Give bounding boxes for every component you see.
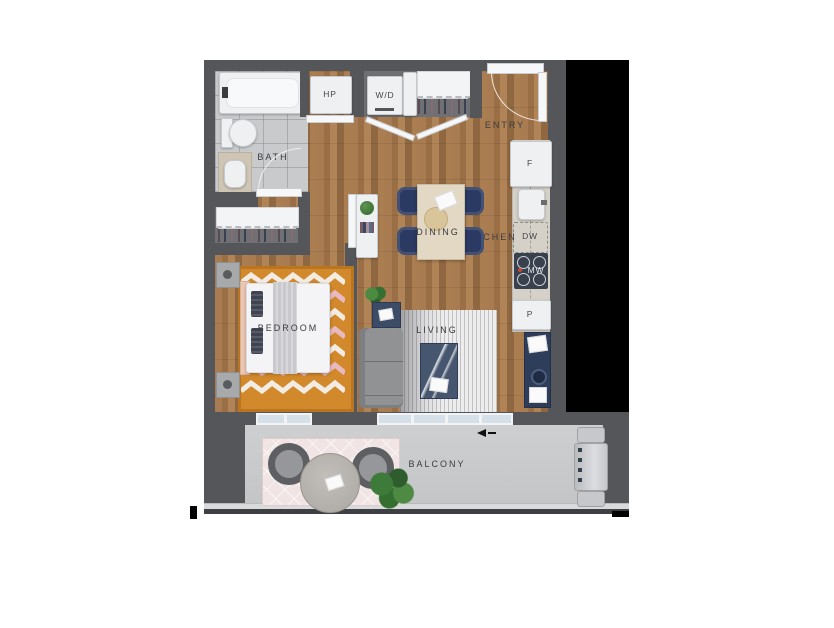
bath-door	[256, 188, 302, 197]
toilet-bowl	[229, 119, 257, 147]
hp-label: HP	[323, 89, 336, 99]
coffee-table-paper	[429, 377, 449, 393]
window-mullion	[445, 415, 448, 423]
coat-closet-shelf	[417, 71, 471, 98]
bathtub-basin	[226, 78, 299, 108]
bath-wall	[204, 192, 258, 207]
bbq-shelf-top	[577, 427, 605, 443]
mw-label: MW	[528, 265, 545, 275]
vanity-sink	[224, 160, 246, 188]
sofa-side-table	[372, 302, 401, 328]
hall-wall-left	[300, 60, 309, 117]
coat-closet-cabinet	[403, 72, 417, 116]
bedroom-top-wall	[204, 243, 300, 255]
console-paper	[527, 335, 548, 353]
balcony-table-card	[324, 474, 344, 492]
dw-label: DW	[522, 231, 538, 241]
bbq-grill	[574, 427, 606, 507]
railing-end-mark-right	[612, 511, 629, 517]
console-box	[529, 387, 547, 403]
window-mullion	[479, 415, 482, 423]
coat-closet-clothes	[418, 98, 468, 114]
lamp-icon	[223, 270, 232, 279]
balcony-wall-left	[204, 412, 245, 505]
console-shelf	[356, 194, 378, 258]
sink-faucet-icon	[541, 200, 547, 205]
pizza-box	[434, 190, 458, 211]
side-table-book	[378, 308, 394, 321]
balcony-plant	[366, 464, 418, 514]
lamp-icon	[223, 380, 232, 389]
washer-vent	[375, 108, 394, 111]
coffee-table	[420, 343, 458, 399]
room-label-entry: ENTRY	[485, 120, 525, 130]
cooktop-indicator	[518, 268, 522, 272]
bedroom-window	[256, 413, 312, 425]
sofa	[359, 328, 403, 408]
balcony-table	[300, 453, 360, 513]
room-label-bedroom: BEDROOM	[258, 323, 319, 333]
slider-direction-arrow	[477, 424, 496, 442]
window-mullion	[284, 415, 287, 423]
media-console	[524, 332, 551, 408]
bbq-knobs	[578, 448, 582, 486]
closet-wall-right	[470, 60, 482, 118]
bathtub-faucet-icon	[222, 87, 228, 98]
railing-end-mark-left	[190, 506, 197, 519]
record-player-icon	[531, 369, 547, 385]
entry-door	[538, 72, 547, 122]
closet-shelf	[216, 207, 299, 228]
room-label-dining: DINING	[416, 227, 460, 237]
nightstand	[216, 262, 240, 288]
fridge-label: F	[527, 158, 533, 168]
kitchen-sink	[518, 189, 545, 220]
vanity	[218, 152, 252, 194]
window-mullion	[411, 415, 414, 423]
room-label-living: LIVING	[416, 325, 458, 335]
pantry-label: P	[527, 309, 533, 319]
closet-clothes	[218, 228, 296, 242]
room-label-balcony: BALCONY	[408, 459, 465, 469]
nightstand	[216, 372, 240, 398]
bathtub	[219, 72, 306, 114]
console-books	[360, 222, 374, 233]
dining-table	[417, 184, 465, 260]
hall-door-sill	[306, 115, 354, 123]
bbq-shelf-bottom	[577, 491, 605, 507]
console-plant-icon	[360, 201, 374, 215]
black-fill-right	[566, 60, 629, 412]
bed-pillow	[251, 291, 263, 317]
bbq-body	[574, 443, 608, 491]
toilet	[221, 116, 257, 148]
floor-plan: BATH HP W/D ENTRY F DW	[0, 0, 834, 628]
hp-wd-divider-wall	[350, 60, 364, 117]
wd-label: W/D	[376, 90, 395, 100]
